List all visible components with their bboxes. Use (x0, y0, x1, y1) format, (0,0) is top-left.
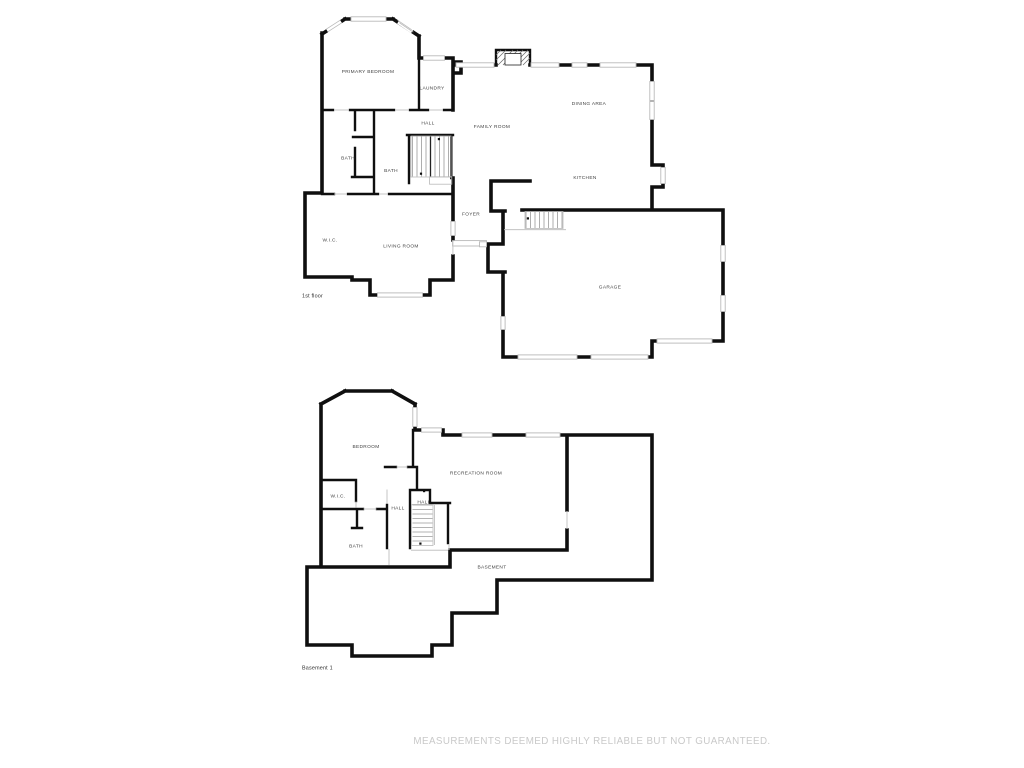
garage-stair-treads (526, 212, 562, 228)
room-label-dining-area: DINING AREA (572, 101, 607, 107)
floor1-windows (378, 56, 726, 359)
room-label-basement-wic: W.I.C. (331, 494, 346, 500)
room-label-kitchen: KITCHEN (573, 175, 597, 181)
bay-window-left (327, 22, 341, 31)
basement-windows (413, 408, 560, 438)
recreation-window-1 (462, 433, 492, 437)
room-label-basement-bath: BATH (349, 544, 363, 550)
room-label-hall-left: HALL (391, 506, 404, 512)
room-label-laundry: LAUNDRY (419, 86, 445, 92)
basement-stair-treads (413, 505, 433, 541)
room-label-hall-right: HALL (417, 500, 430, 506)
garage-rear-window-band (657, 339, 712, 343)
basement-stair-outline (412, 505, 434, 546)
porch-step (480, 242, 487, 247)
room-label-hall: HALL (421, 121, 434, 127)
garage-stair-marker-dot (527, 217, 529, 219)
floor1-caption: 1st floor (302, 294, 323, 300)
living-room-bay-window (378, 293, 423, 297)
bay-window-top (351, 17, 386, 21)
garage-door-1 (518, 355, 577, 359)
stair-landing (430, 177, 452, 184)
stair-marker-dot (420, 173, 422, 175)
room-label-bath-left: BATH (341, 156, 355, 162)
kitchen-window (661, 168, 665, 184)
garage-door-2 (591, 355, 648, 359)
floor1-room-labels: PRIMARY BEDROOM LAUNDRY HALL BATH BATH F… (323, 69, 622, 291)
basement-caption: Basement 1 (302, 666, 333, 672)
basement-plan: BEDROOM RECREATION ROOM W.I.C. HALL HALL… (302, 391, 652, 672)
bedroom-side-window (413, 408, 417, 427)
garage-window-2 (721, 296, 725, 312)
room-label-wic: W.I.C. (323, 238, 338, 244)
basement-stair-marker-dot (423, 490, 425, 492)
room-label-family-room: FAMILY ROOM (474, 124, 510, 130)
fireplace (496, 50, 530, 65)
dining-window-3 (600, 63, 636, 67)
floorplan-page: PRIMARY BEDROOM LAUNDRY HALL BATH BATH F… (0, 0, 1024, 768)
recreation-window-2 (526, 433, 560, 437)
basement-exterior-walls (307, 391, 652, 656)
room-label-basement-area: BASEMENT (478, 565, 507, 571)
garage-staircase (504, 212, 566, 230)
garage-window-1 (721, 246, 725, 262)
room-label-primary-bedroom: PRIMARY BEDROOM (342, 69, 395, 75)
dining-side-window-2 (650, 102, 654, 120)
garage-side-window (501, 317, 505, 330)
basement-interior-walls (321, 430, 450, 548)
floorplan-canvas: PRIMARY BEDROOM LAUNDRY HALL BATH BATH F… (0, 0, 1024, 768)
bay-window-right (399, 22, 413, 32)
dining-side-window-1 (650, 82, 654, 101)
room-label-recreation-room: RECREATION ROOM (450, 471, 502, 477)
floor1-bay-windows (326, 17, 413, 32)
family-room-window (456, 63, 494, 67)
room-label-foyer: FOYER (462, 212, 480, 218)
first-floor-plan: PRIMARY BEDROOM LAUNDRY HALL BATH BATH F… (302, 17, 725, 359)
room-label-bedroom: BEDROOM (352, 444, 379, 450)
room-label-living-room: LIVING ROOM (383, 244, 419, 250)
firebox (505, 54, 521, 66)
footer-disclaimer: MEASUREMENTS DEEMED HIGHLY RELIABLE BUT … (413, 736, 770, 747)
basement-stair-marker-dot (419, 543, 421, 545)
laundry-window (424, 56, 445, 60)
main-staircase (411, 136, 452, 184)
stair-marker-dot (438, 138, 440, 140)
dining-window-2 (572, 63, 587, 67)
dining-window-1 (531, 63, 559, 67)
room-label-garage: GARAGE (599, 285, 621, 291)
room-label-bath-center: BATH (384, 168, 398, 174)
living-room-side-window (451, 222, 455, 236)
bedroom-top-window (422, 428, 442, 432)
floor1-door-marks (334, 110, 453, 255)
